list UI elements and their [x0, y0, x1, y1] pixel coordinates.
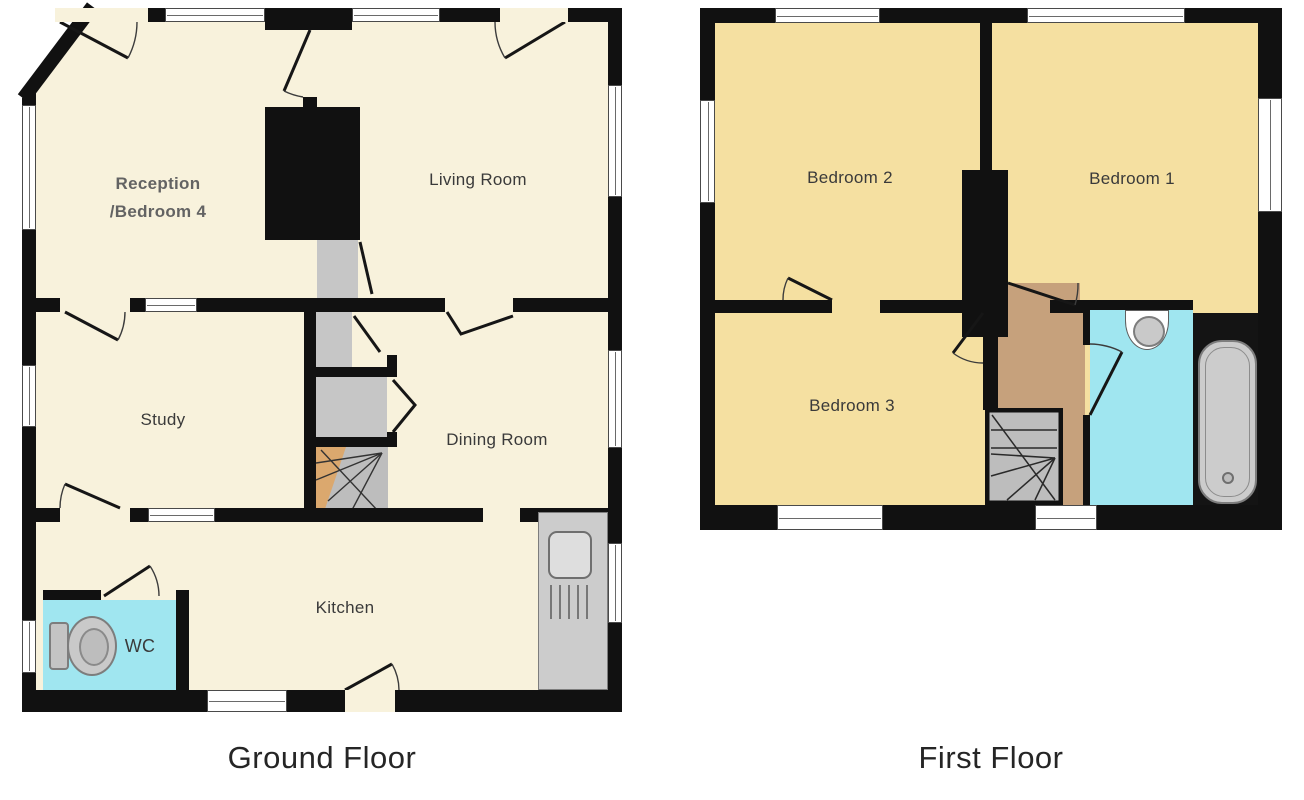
window — [608, 543, 622, 623]
sink-drainer — [550, 585, 590, 619]
sink-bowl — [1133, 316, 1165, 347]
door-study-bottom — [65, 484, 120, 508]
window — [608, 350, 622, 448]
room-label-bedroom3: Bedroom 3 — [762, 396, 942, 416]
window — [777, 505, 883, 530]
window — [608, 85, 622, 197]
wall-b2-b3-b — [880, 300, 962, 313]
toilet-tank — [49, 622, 69, 670]
door-hall-dining — [354, 316, 380, 352]
room-label-wc: WC — [100, 636, 180, 657]
window — [165, 8, 265, 22]
door-wc — [104, 566, 150, 596]
window — [775, 8, 880, 23]
room-label-dining: Dining Room — [407, 430, 587, 450]
room-label-study: Study — [73, 410, 253, 430]
door-arc — [150, 566, 159, 596]
wall-bathroom-left-b — [1083, 415, 1090, 505]
door-arc — [953, 353, 983, 363]
wall-kitchen-c — [215, 508, 483, 522]
door-arc — [118, 312, 125, 340]
window — [1258, 98, 1282, 212]
floorplan-page: { "document_type": "property-floor-plan"… — [0, 0, 1304, 800]
living-door-opening — [500, 8, 568, 22]
wall-mid-b — [130, 298, 145, 312]
door-study-top — [65, 312, 118, 340]
room-label-kitchen: Kitchen — [255, 598, 435, 618]
room-label-reception: Reception /Bedroom 4 — [68, 170, 248, 226]
front-door-opening — [55, 8, 148, 22]
door-bedroom2 — [788, 278, 832, 300]
wall-hall-1 — [304, 367, 395, 377]
chimney-stub — [303, 97, 317, 107]
door-arc — [128, 22, 137, 58]
ground-floor-title: Ground Floor — [22, 740, 622, 776]
kitchen-counter — [538, 512, 608, 690]
reception-line2: /Bedroom 4 — [68, 198, 248, 226]
bathtub-drain — [1222, 472, 1234, 484]
bathtub-icon — [1198, 340, 1257, 504]
room-label-bedroom2: Bedroom 2 — [760, 168, 940, 188]
kitchen-door-opening — [345, 690, 395, 712]
wall-wc-top — [43, 590, 101, 600]
window — [22, 105, 36, 230]
door-living-dining — [447, 312, 513, 334]
door-arc — [783, 278, 788, 300]
reception-line1: Reception — [68, 170, 248, 198]
door-arc — [392, 664, 399, 690]
room-label-bedroom1: Bedroom 1 — [1042, 169, 1222, 189]
room-label-living: Living Room — [388, 170, 568, 190]
door-dining-hall — [393, 380, 415, 432]
window — [700, 100, 715, 203]
door-arc — [495, 22, 505, 58]
first-floor-plan: Bedroom 2 Bedroom 1 Bedroom 3 — [700, 8, 1282, 530]
wall-b2-b3-a — [715, 300, 832, 313]
window — [352, 8, 440, 22]
chimney-breast-ground — [265, 107, 360, 240]
hallway-upper — [317, 240, 358, 298]
wall-bedroom-divider — [980, 23, 992, 170]
wall-study-right — [304, 312, 316, 508]
ground-floor-plan: Reception /Bedroom 4 Living Room Study D… — [22, 8, 622, 712]
wall-mid-a — [36, 298, 60, 312]
door-arc — [284, 91, 303, 97]
window — [207, 690, 287, 712]
door-living-hall — [360, 242, 372, 294]
internal-window-study-top — [145, 298, 197, 312]
window — [1027, 8, 1185, 23]
wall-kitchen-a — [36, 508, 60, 522]
wall-bedroom3-right — [983, 313, 998, 410]
window — [22, 620, 36, 673]
chimney-breast-first — [962, 170, 1008, 337]
door-arc — [60, 484, 65, 508]
first-floor-title: First Floor — [700, 740, 1282, 776]
staircase-first — [985, 408, 1063, 505]
wall-mid-e — [513, 298, 608, 312]
internal-window-study-bottom — [148, 508, 215, 522]
kitchen-sink-icon — [548, 531, 592, 579]
window — [1035, 505, 1097, 530]
wall-kitchen-b — [130, 508, 148, 522]
wall-top-center — [265, 22, 352, 30]
door-living-exterior — [505, 22, 565, 58]
staircase-ground — [316, 447, 388, 512]
wall-dining-post-2 — [387, 432, 397, 447]
hallway-middle — [316, 377, 387, 437]
window — [22, 365, 36, 427]
door-reception-living — [284, 30, 310, 91]
wall-bathroom-left-a — [1083, 310, 1090, 345]
wall-hall-2 — [304, 437, 387, 447]
hallway-entrance — [316, 312, 352, 367]
door-kitchen-exterior — [345, 664, 392, 690]
wall-dining-post-1 — [387, 355, 397, 377]
wall-mid-c — [197, 298, 445, 312]
